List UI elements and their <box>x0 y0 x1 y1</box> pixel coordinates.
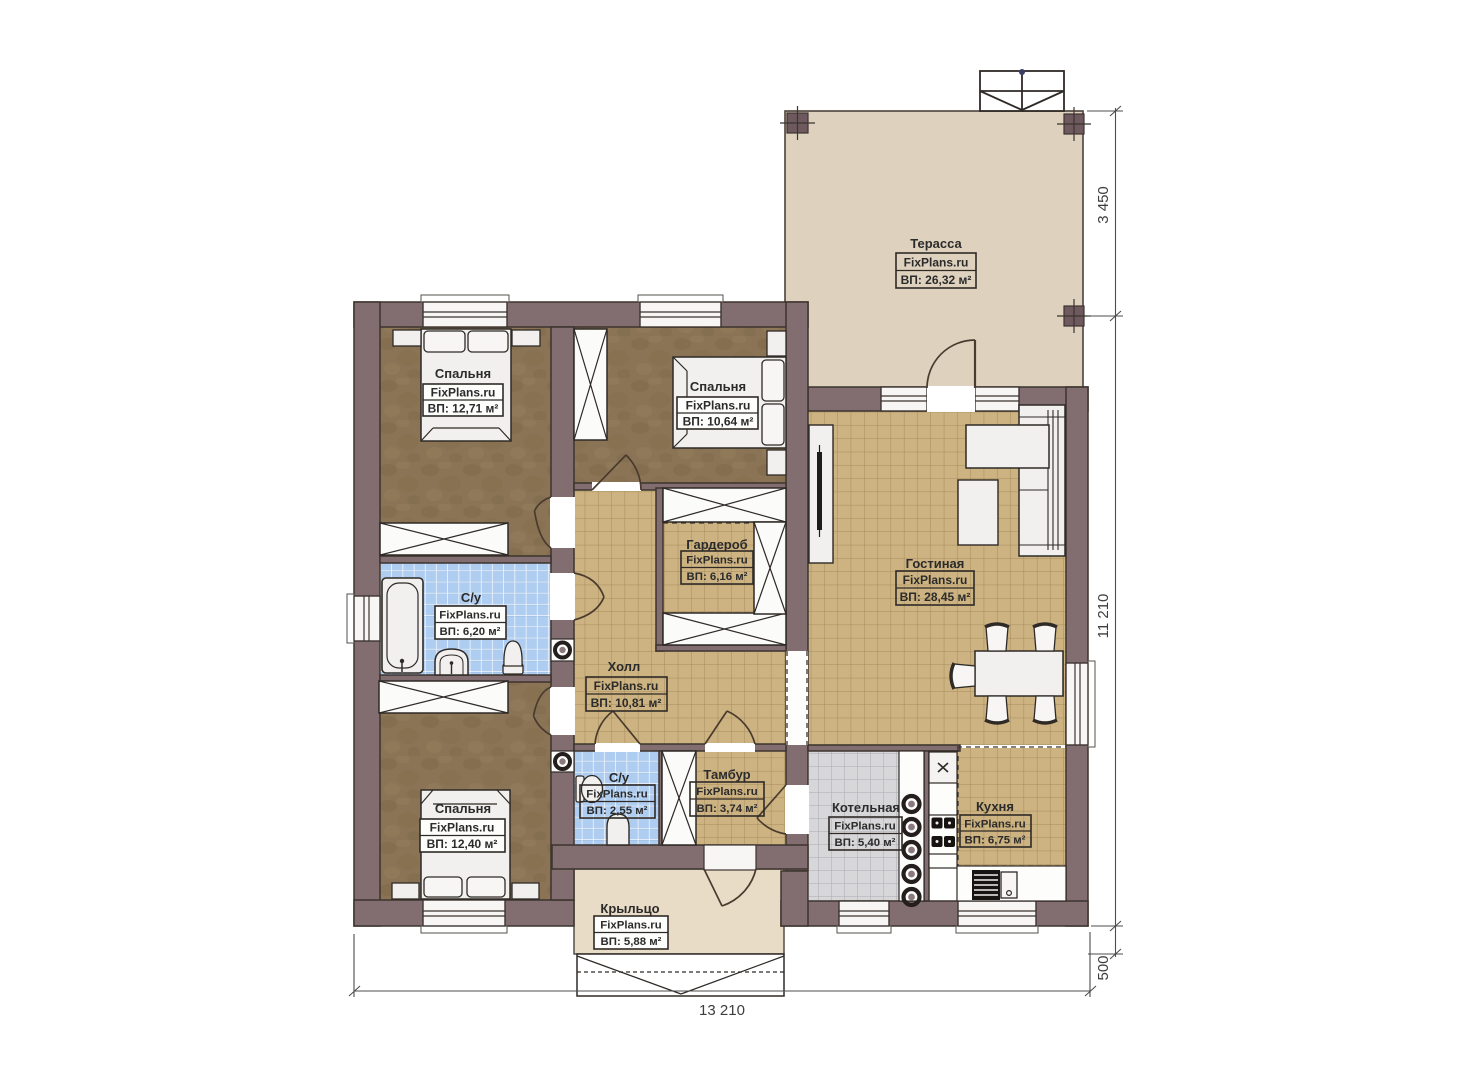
svg-text:11 210: 11 210 <box>1095 594 1112 639</box>
svg-text:3 450: 3 450 <box>1095 186 1112 224</box>
svg-text:FixPlans.ru: FixPlans.ru <box>686 399 751 413</box>
svg-text:FixPlans.ru: FixPlans.ru <box>594 679 659 693</box>
svg-text:Терасса: Терасса <box>910 236 962 251</box>
svg-text:Спальня: Спальня <box>435 366 491 381</box>
svg-text:ВП: 2,55 м²: ВП: 2,55 м² <box>587 805 648 817</box>
svg-text:ВП: 6,75 м²: ВП: 6,75 м² <box>965 835 1026 847</box>
svg-text:ВП: 10,81 м²: ВП: 10,81 м² <box>591 696 662 710</box>
svg-text:ВП: 6,16 м²: ВП: 6,16 м² <box>687 571 748 583</box>
svg-text:ВП: 28,45 м²: ВП: 28,45 м² <box>900 590 971 604</box>
svg-text:FixPlans.ru: FixPlans.ru <box>686 555 747 567</box>
svg-text:500: 500 <box>1095 955 1112 980</box>
svg-text:13 210: 13 210 <box>699 1002 745 1019</box>
svg-text:ВП: 12,71 м²: ВП: 12,71 м² <box>428 402 499 416</box>
svg-text:FixPlans.ru: FixPlans.ru <box>904 256 969 270</box>
svg-text:ВП: 10,64 м²: ВП: 10,64 м² <box>683 415 754 429</box>
svg-text:FixPlans.ru: FixPlans.ru <box>964 819 1025 831</box>
svg-text:Холл: Холл <box>608 659 641 674</box>
svg-text:ВП: 26,32 м²: ВП: 26,32 м² <box>901 273 972 287</box>
svg-text:FixPlans.ru: FixPlans.ru <box>696 786 757 798</box>
svg-text:ВП: 5,40 м²: ВП: 5,40 м² <box>835 837 896 849</box>
svg-text:FixPlans.ru: FixPlans.ru <box>439 610 500 622</box>
svg-text:Кухня: Кухня <box>976 799 1014 814</box>
svg-text:FixPlans.ru: FixPlans.ru <box>600 920 661 932</box>
svg-text:FixPlans.ru: FixPlans.ru <box>903 573 968 587</box>
svg-text:FixPlans.ru: FixPlans.ru <box>586 789 647 801</box>
svg-text:Гостиная: Гостиная <box>906 556 965 571</box>
svg-text:Спальня: Спальня <box>690 379 746 394</box>
svg-text:FixPlans.ru: FixPlans.ru <box>431 386 496 400</box>
svg-text:FixPlans.ru: FixPlans.ru <box>430 821 495 835</box>
svg-text:Тамбур: Тамбур <box>703 767 750 782</box>
svg-text:ВП: 3,74 м²: ВП: 3,74 м² <box>697 803 758 815</box>
svg-text:С/у: С/у <box>609 770 630 785</box>
svg-text:ВП: 6,20 м²: ВП: 6,20 м² <box>440 626 501 638</box>
svg-text:ВП: 5,88 м²: ВП: 5,88 м² <box>601 936 662 948</box>
svg-text:FixPlans.ru: FixPlans.ru <box>834 821 895 833</box>
svg-text:Спальня: Спальня <box>435 801 491 816</box>
svg-text:Котельная: Котельная <box>832 800 900 815</box>
svg-text:Крыльцо: Крыльцо <box>600 901 659 916</box>
svg-text:Гардероб: Гардероб <box>686 537 747 552</box>
svg-text:ВП: 12,40 м²: ВП: 12,40 м² <box>427 837 498 851</box>
svg-text:С/у: С/у <box>461 590 482 605</box>
